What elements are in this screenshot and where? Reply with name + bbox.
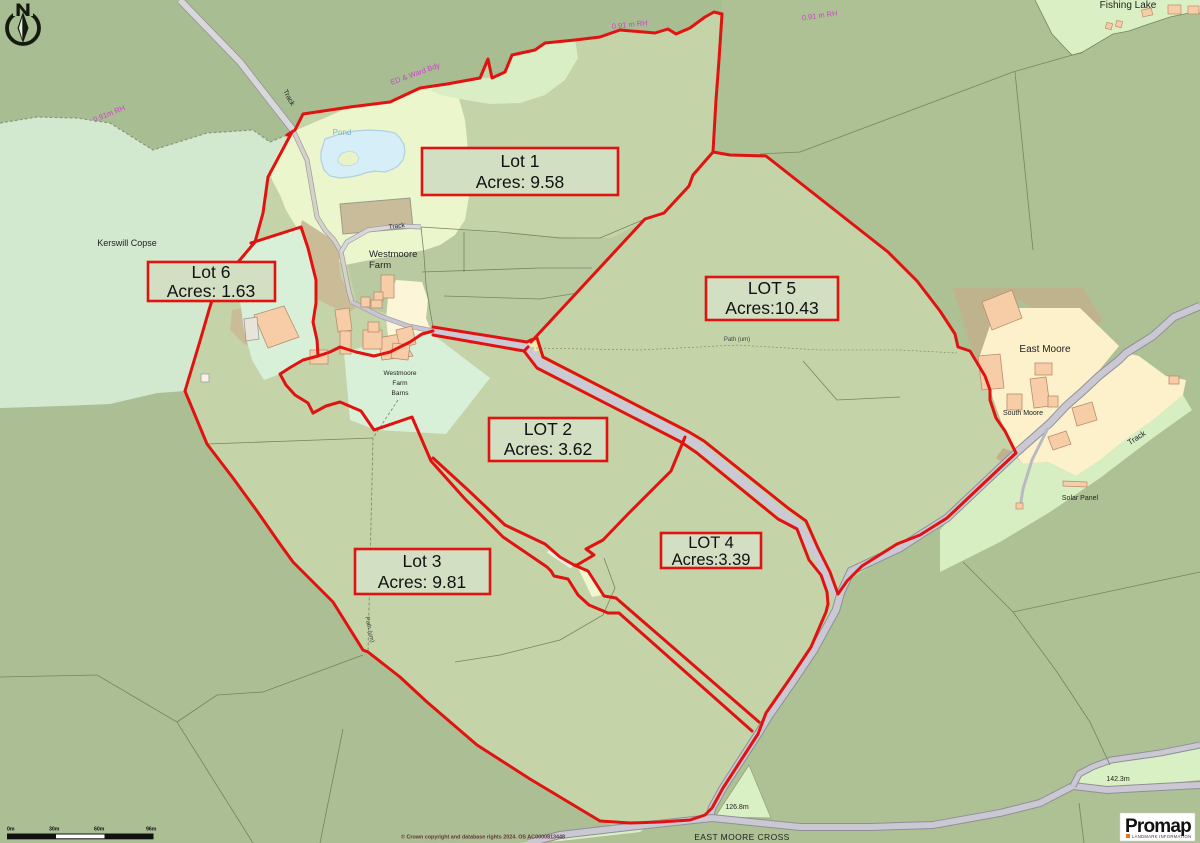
svg-text:60m: 60m [94, 827, 105, 833]
svg-text:126.8m: 126.8m [725, 804, 749, 811]
svg-text:Kerswill Copse: Kerswill Copse [97, 238, 157, 248]
svg-text:30m: 30m [49, 827, 60, 833]
svg-text:Pond: Pond [333, 128, 352, 137]
svg-text:East Moore: East Moore [1019, 344, 1071, 355]
svg-text:Fishing Lake: Fishing Lake [1100, 0, 1157, 11]
svg-text:Farm: Farm [369, 260, 391, 271]
svg-text:Acres: 3.62: Acres: 3.62 [504, 439, 593, 459]
svg-text:142.3m: 142.3m [1106, 776, 1130, 783]
svg-text:South Moore: South Moore [1003, 410, 1043, 417]
svg-text:Farm: Farm [392, 380, 407, 387]
svg-text:© Crown copyright and database: © Crown copyright and database rights 20… [401, 834, 565, 841]
svg-text:LOT 2: LOT 2 [524, 419, 572, 439]
svg-text:Acres:3.39: Acres:3.39 [672, 551, 751, 569]
svg-text:Westmoore: Westmoore [369, 249, 417, 260]
svg-text:Path (um): Path (um) [724, 337, 750, 343]
svg-text:Acres:10.43: Acres:10.43 [725, 298, 818, 318]
svg-text:0m: 0m [7, 827, 15, 833]
svg-text:96m: 96m [146, 827, 157, 833]
svg-text:Westmoore: Westmoore [383, 370, 416, 377]
svg-text:LOT 5: LOT 5 [748, 278, 796, 298]
svg-text:Acres: 9.58: Acres: 9.58 [476, 172, 565, 192]
svg-text:Lot 3: Lot 3 [403, 551, 442, 571]
svg-text:Barns: Barns [392, 390, 410, 397]
svg-text:LOT 4: LOT 4 [688, 534, 734, 552]
svg-text:Acres: 9.81: Acres: 9.81 [378, 572, 467, 592]
svg-text:Acres: 1.63: Acres: 1.63 [167, 281, 256, 301]
svg-text:Lot 1: Lot 1 [501, 151, 540, 171]
svg-text:Lot 6: Lot 6 [192, 262, 231, 282]
svg-text:LANDMARK INFORMATION: LANDMARK INFORMATION [1132, 834, 1191, 839]
svg-text:Solar Panel: Solar Panel [1062, 495, 1099, 502]
svg-text:EAST MOORE CROSS: EAST MOORE CROSS [694, 832, 790, 842]
